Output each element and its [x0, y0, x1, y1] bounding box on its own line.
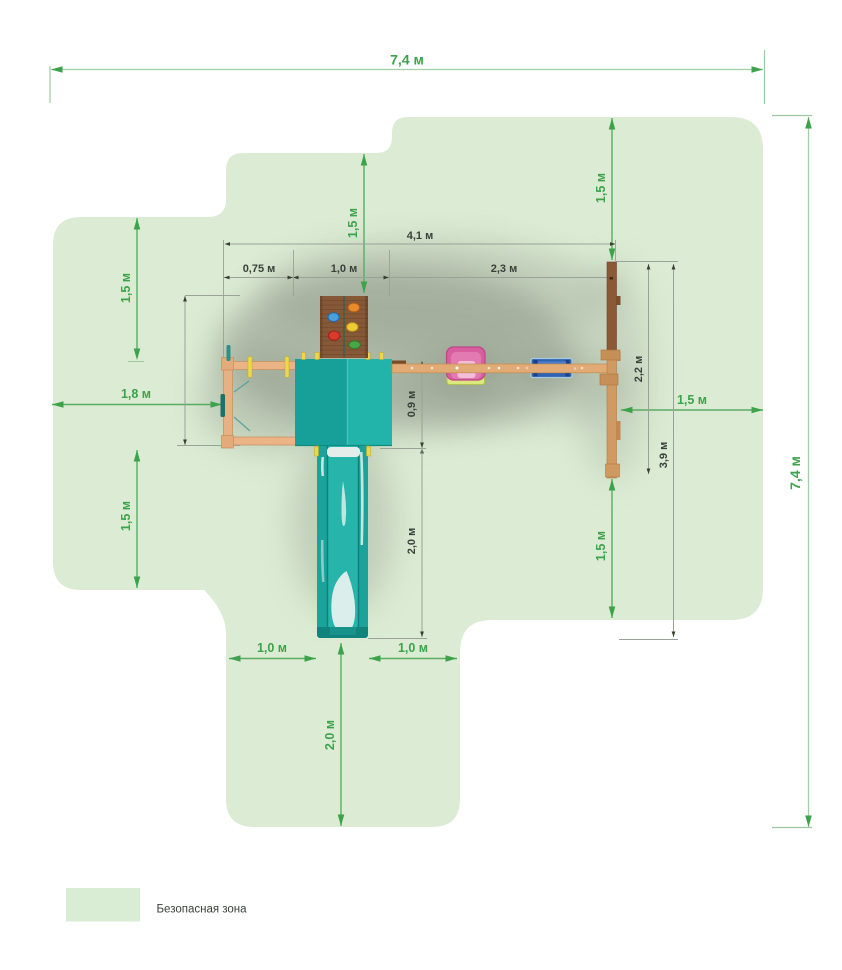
svg-text:1,5 м: 1,5 м [119, 273, 133, 303]
svg-text:7,4 м: 7,4 м [787, 456, 803, 490]
svg-text:1,5 м: 1,5 м [594, 173, 608, 203]
svg-text:1,0 м: 1,0 м [331, 263, 358, 275]
svg-text:4,1 м: 4,1 м [407, 230, 434, 242]
svg-text:1,5 м: 1,5 м [346, 208, 360, 238]
svg-text:1,0 м: 1,0 м [257, 641, 287, 655]
svg-text:3,9 м: 3,9 м [658, 442, 670, 469]
svg-text:2,3 м: 2,3 м [491, 263, 518, 275]
svg-text:0,9 м: 0,9 м [406, 391, 418, 418]
svg-text:1,5 м: 1,5 м [119, 501, 133, 531]
svg-text:1,5 м: 1,5 м [677, 393, 707, 407]
svg-text:1,0 м: 1,0 м [398, 641, 428, 655]
svg-text:7,4 м: 7,4 м [390, 52, 424, 68]
svg-text:1,5 м: 1,5 м [594, 531, 608, 561]
svg-text:2,0 м: 2,0 м [406, 528, 418, 555]
svg-text:2,0 м: 2,0 м [323, 720, 337, 750]
svg-text:Безопасная зона: Безопасная зона [157, 904, 248, 916]
svg-text:0,75 м: 0,75 м [243, 263, 276, 275]
svg-text:1,8 м: 1,8 м [121, 387, 151, 401]
svg-text:2,2 м: 2,2 м [633, 356, 645, 383]
